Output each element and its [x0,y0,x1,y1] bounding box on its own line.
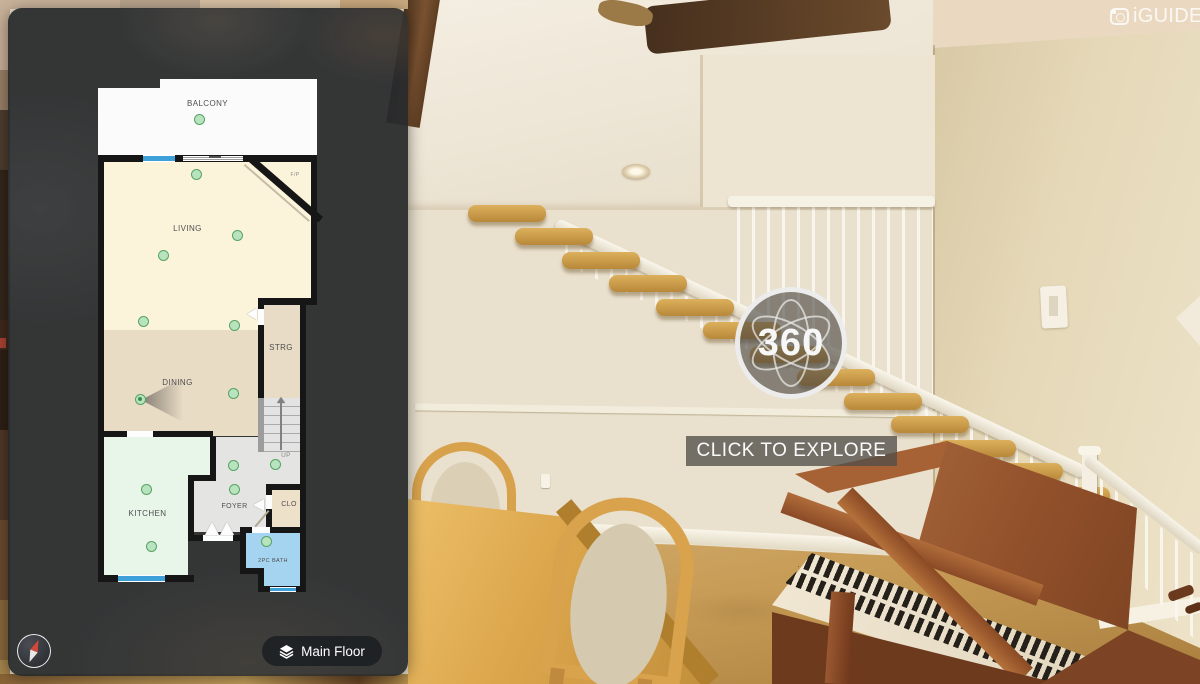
dining-chair2-leg [635,678,653,684]
iguide-camera-icon [1110,8,1129,25]
iguide-logo: iGUIDE [1110,5,1200,28]
recessed-light [622,164,650,179]
stair-step [515,228,593,245]
stairwell-upper-wall [702,55,935,207]
compass[interactable] [17,634,51,668]
click-to-explore-label: CLICK TO EXPLORE [697,440,887,462]
dining-chair2-leg [547,667,565,684]
dining-chair2 [528,488,721,684]
iguide-camera-icon-lens [1116,13,1125,22]
iguide-viewer: BALCONY LIVING DINING STRG KITCHEN FOYER… [0,0,1200,684]
iguide-logo-text: iGUIDE [1133,5,1200,28]
compass-needle-icon [26,638,42,663]
layers-icon [279,644,294,659]
soffit-edge [700,55,703,207]
stair-step [656,299,734,316]
stair-step [468,205,546,222]
stair-step [844,393,922,410]
stair-step [891,416,969,433]
light-switch-toggle [1049,296,1058,316]
stair-step [562,252,640,269]
landing-handrail [728,196,935,207]
newel-cap [1078,446,1101,455]
compass-needle-south [26,650,38,664]
click-to-explore-button[interactable]: CLICK TO EXPLORE [686,436,897,466]
iguide-camera-icon-notch [1112,10,1116,14]
wall-outlet [541,474,550,488]
360-badge[interactable]: 360 [735,287,847,399]
floor-selector-button[interactable]: Main Floor [262,636,382,666]
floor-selector-label: Main Floor [301,644,365,659]
stair-step [609,275,687,292]
badge-360-text: 360 [758,322,824,365]
floorplan-panel[interactable] [8,8,408,676]
photo-edge-left-accent [0,338,6,348]
